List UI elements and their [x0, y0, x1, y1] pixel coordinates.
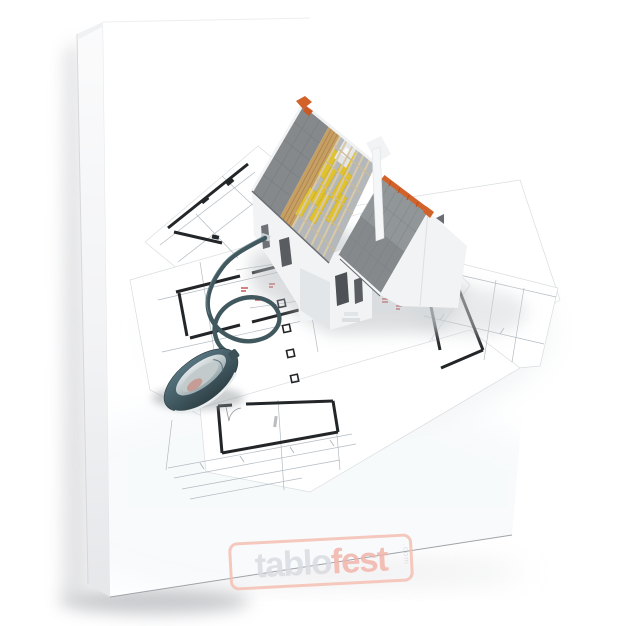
watermark: tablofest .com [228, 533, 414, 591]
watermark-text-suffix: .com [401, 543, 411, 565]
window-opening [354, 277, 363, 304]
canvas-print [0, 0, 626, 626]
window-opening [335, 272, 349, 306]
watermark-text-secondary: fest [330, 539, 388, 581]
watermark-text-primary: tablo [254, 542, 332, 585]
product-photo: tablofest .com [0, 0, 626, 626]
watermark-text: tablofest [254, 541, 388, 583]
